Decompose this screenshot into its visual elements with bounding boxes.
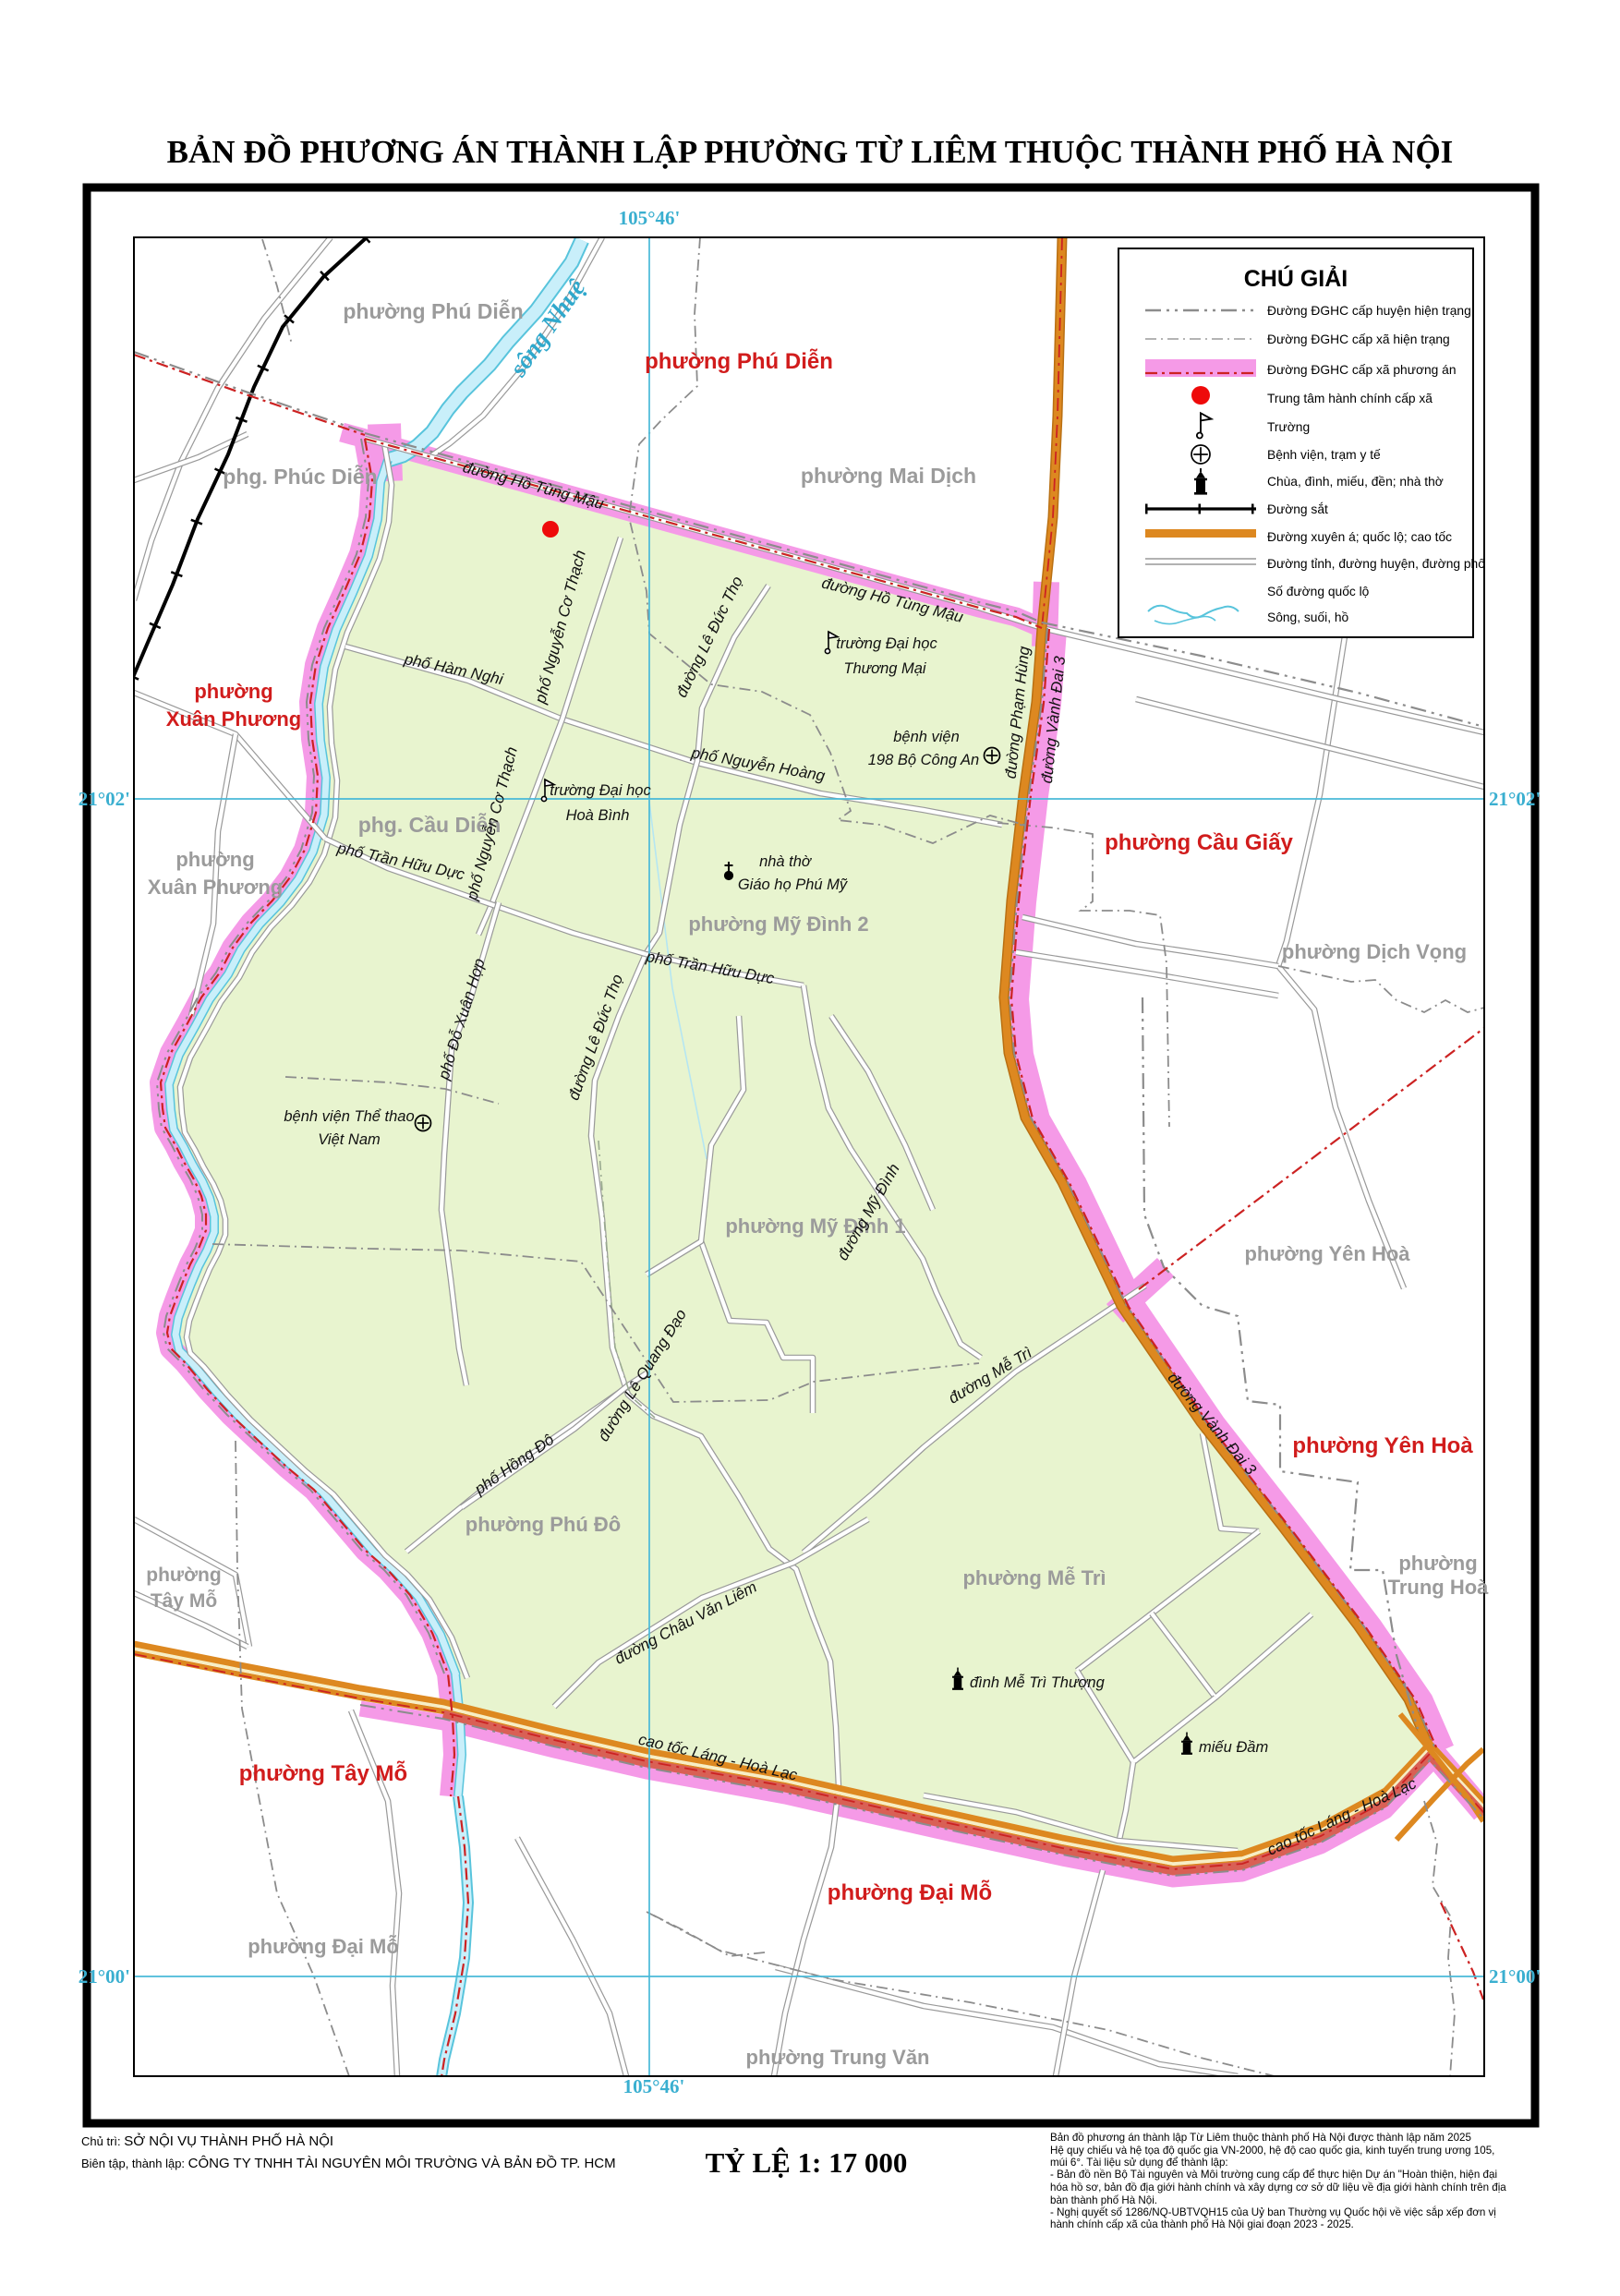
svg-text:- Bản đồ nền Bộ Tài nguyên và: - Bản đồ nền Bộ Tài nguyên và Môi trường…	[1050, 2169, 1497, 2181]
svg-text:21°00': 21°00'	[1489, 1965, 1541, 1988]
svg-text:nhà thờ: nhà thờ	[759, 853, 813, 870]
svg-text:Biên tập, thành lập: CÔNG TY T: Biên tập, thành lập: CÔNG TY TNHH TÀI NG…	[81, 2155, 616, 2171]
svg-text:trường Đại học: trường Đại học	[550, 782, 651, 799]
svg-text:phường Trung Văn: phường Trung Văn	[746, 2046, 930, 2069]
svg-text:phường: phường	[146, 1565, 221, 1586]
svg-text:phường: phường	[1398, 1552, 1477, 1575]
svg-text:Số đường quốc lộ: Số đường quốc lộ	[1267, 585, 1370, 598]
svg-text:phường Phú Diễn: phường Phú Diễn	[343, 298, 523, 323]
svg-text:Trung Hoà: Trung Hoà	[1388, 1576, 1490, 1599]
svg-text:Đường ĐGHC cấp huyện hiện trạn: Đường ĐGHC cấp huyện hiện trạng	[1267, 304, 1471, 318]
svg-text:phường Mễ Trì: phường Mễ Trì	[962, 1566, 1106, 1589]
svg-text:hóa hồ sơ, bản đồ địa giới hàn: hóa hồ sơ, bản đồ địa giới hành chính và…	[1050, 2181, 1506, 2193]
svg-text:Bản đồ phương án thành lập Từ: Bản đồ phương án thành lập Từ Liêm thuộc…	[1050, 2132, 1471, 2144]
svg-text:105°46': 105°46'	[623, 2075, 685, 2097]
svg-text:phg. Phúc Diễn: phg. Phúc Diễn	[223, 464, 377, 489]
svg-text:hành chính cấp xã của thành ph: hành chính cấp xã của thành phố Hà Nội g…	[1050, 2218, 1354, 2230]
svg-text:Đường sắt: Đường sắt	[1267, 501, 1328, 516]
svg-text:Đường tỉnh, đường huyện, đường: Đường tỉnh, đường huyện, đường phố	[1267, 557, 1485, 571]
svg-text:- Nghị quyết số 1286/NQ-UBTVQH: - Nghị quyết số 1286/NQ-UBTVQH15 của Uỷ …	[1050, 2206, 1496, 2218]
svg-text:phường Mai Dịch: phường Mai Dịch	[801, 464, 976, 488]
svg-text:phường: phường	[175, 848, 254, 871]
svg-text:Hoà Bình: Hoà Bình	[566, 807, 630, 824]
svg-text:Trường: Trường	[1267, 420, 1310, 434]
svg-text:Hệ quy chiếu và hệ tọa độ quốc: Hệ quy chiếu và hệ tọa độ quốc gia VN-20…	[1050, 2145, 1494, 2157]
svg-text:Đường ĐGHC cấp xã phương án: Đường ĐGHC cấp xã phương án	[1267, 363, 1457, 377]
svg-text:phường Mỹ Đình 2: phường Mỹ Đình 2	[688, 912, 868, 936]
svg-text:phường Tây Mỗ: phường Tây Mỗ	[239, 1760, 407, 1786]
svg-text:Xuân Phương: Xuân Phương	[148, 876, 283, 899]
svg-text:21°00': 21°00'	[79, 1965, 130, 1988]
svg-text:Sông, suối, hồ: Sông, suối, hồ	[1267, 610, 1349, 624]
svg-text:phường Yên Hoà: phường Yên Hoà	[1244, 1242, 1410, 1265]
svg-text:miếu Đầm: miếu Đầm	[1199, 1739, 1268, 1756]
svg-text:Bệnh viện, trạm y tế: Bệnh viện, trạm y tế	[1267, 448, 1381, 462]
svg-text:phường Phú Đô: phường Phú Đô	[465, 1513, 621, 1536]
svg-text:trường Đại học: trường Đại học	[836, 635, 937, 652]
svg-text:105°46': 105°46'	[619, 207, 681, 229]
svg-text:phường Đại Mỗ: phường Đại Mỗ	[248, 1935, 399, 1958]
svg-text:phường Dịch Vọng: phường Dịch Vọng	[1282, 940, 1467, 963]
svg-text:phường: phường	[194, 680, 272, 703]
svg-text:bàn thành phố Hà Nội.: bàn thành phố Hà Nội.	[1050, 2194, 1157, 2206]
svg-text:BẢN ĐỒ PHƯƠNG ÁN THÀNH LẬP PHƯ: BẢN ĐỒ PHƯƠNG ÁN THÀNH LẬP PHƯỜNG TỪ LIÊ…	[167, 132, 1454, 170]
svg-text:phường Yên Hoà: phường Yên Hoà	[1292, 1433, 1473, 1458]
svg-text:198 Bộ Công An: 198 Bộ Công An	[868, 752, 979, 768]
svg-text:múi 6°. Tài liệu sử dụng để th: múi 6°. Tài liệu sử dụng để thành lập:	[1050, 2157, 1228, 2169]
svg-text:phường Cầu Giấy: phường Cầu Giấy	[1105, 830, 1293, 855]
svg-text:Đường ĐGHC cấp xã hiện trạng: Đường ĐGHC cấp xã hiện trạng	[1267, 332, 1450, 346]
svg-text:bệnh viện: bệnh viện	[893, 729, 960, 745]
svg-text:phường Mỹ Đình 1: phường Mỹ Đình 1	[725, 1214, 905, 1238]
svg-text:Trung tâm hành chính cấp xã: Trung tâm hành chính cấp xã	[1267, 392, 1433, 405]
svg-text:bệnh viện Thể thao: bệnh viện Thể thao	[284, 1108, 414, 1125]
svg-text:Chủ trì: SỞ NỘI VỤ THÀNH PHỐ: Chủ trì: SỞ NỘI VỤ THÀNH PHỐ HÀ NỘI	[81, 2133, 333, 2149]
svg-text:Việt Nam: Việt Nam	[318, 1131, 381, 1148]
svg-text:Chùa, đình, miếu, đền; nhà thờ: Chùa, đình, miếu, đền; nhà thờ	[1267, 475, 1444, 489]
svg-text:Giáo họ Phú Mỹ: Giáo họ Phú Mỹ	[738, 876, 849, 893]
svg-text:Đường xuyên á; quốc lộ; cao tố: Đường xuyên á; quốc lộ; cao tốc	[1267, 530, 1452, 544]
svg-text:phường Đại Mỗ: phường Đại Mỗ	[828, 1879, 992, 1905]
svg-text:Tây Mỗ: Tây Mỗ	[151, 1589, 217, 1612]
svg-text:phường Phú Diễn: phường Phú Diễn	[645, 348, 833, 374]
svg-text:TỶ LỆ 1: 17 000: TỶ LỆ 1: 17 000	[706, 2146, 908, 2179]
svg-text:21°02': 21°02'	[1489, 788, 1541, 810]
svg-text:21°02': 21°02'	[79, 788, 130, 810]
svg-text:Xuân Phương: Xuân Phương	[166, 707, 301, 731]
svg-text:đình Mễ Trì Thượng: đình Mễ Trì Thượng	[970, 1674, 1106, 1691]
svg-text:Thương Mại: Thương Mại	[843, 660, 927, 677]
svg-text:CHÚ GIẢI: CHÚ GIẢI	[1244, 264, 1348, 292]
